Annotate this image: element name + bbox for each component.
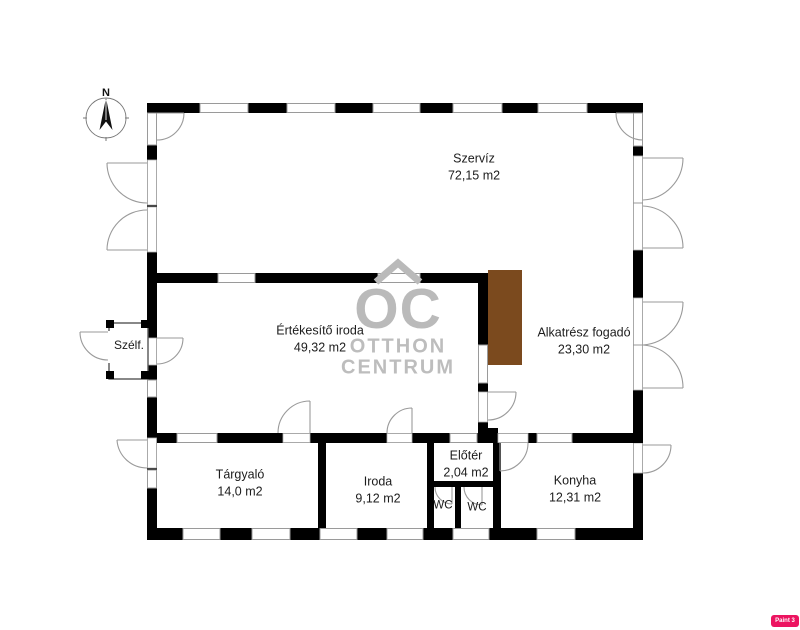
- room-label-szerviz: Szervíz 72,15 m2: [448, 151, 500, 184]
- watermark-logo: OC: [354, 276, 442, 342]
- compass-north-label: N: [102, 87, 110, 99]
- room-label-targyalo: Tárgyaló 14,0 m2: [216, 467, 265, 500]
- room-name: Tárgyaló: [216, 468, 265, 482]
- room-name: Előtér: [450, 449, 483, 463]
- room-area: 72,15 m2: [448, 167, 500, 184]
- room-label-wc-1: WC: [433, 498, 452, 513]
- room-name: Iroda: [364, 475, 393, 489]
- room-area: 2,04 m2: [443, 464, 488, 481]
- floor-plan-page: N OC OTTHON CENTRUM Szervíz 72,15 m2 Ért…: [0, 0, 800, 630]
- room-label-alkatresz-fogado: Alkatrész fogadó 23,30 m2: [537, 325, 630, 358]
- room-label-ertekesito-iroda: Értékesítő iroda 49,32 m2: [276, 323, 364, 356]
- room-name: Szervíz: [453, 152, 495, 166]
- room-name: WC: [467, 501, 486, 513]
- room-label-eloter: Előtér 2,04 m2: [443, 448, 488, 481]
- room-label-konyha: Konyha 12,31 m2: [549, 473, 601, 506]
- watermark-centrum: CENTRUM: [341, 357, 455, 380]
- watermark-otthon: OTTHON: [350, 336, 446, 359]
- room-label-wc-2: WC: [467, 500, 486, 515]
- north-compass: N: [83, 87, 129, 141]
- room-label-szelfogo: Szélf.: [114, 338, 144, 354]
- room-label-iroda: Iroda 9,12 m2: [355, 474, 400, 507]
- room-name: Alkatrész fogadó: [537, 326, 630, 340]
- room-name: Értékesítő iroda: [276, 324, 364, 338]
- room-name: WC: [433, 499, 452, 511]
- room-area: 12,31 m2: [549, 489, 601, 506]
- storage-counter: [488, 270, 522, 365]
- room-area: 49,32 m2: [276, 339, 364, 356]
- corner-badge: Paint 3 Me: [771, 615, 799, 627]
- room-area: 23,30 m2: [537, 341, 630, 358]
- room-area: 14,0 m2: [216, 483, 265, 500]
- room-name: Szélf.: [114, 338, 144, 352]
- room-name: Konyha: [554, 474, 596, 488]
- room-area: 9,12 m2: [355, 490, 400, 507]
